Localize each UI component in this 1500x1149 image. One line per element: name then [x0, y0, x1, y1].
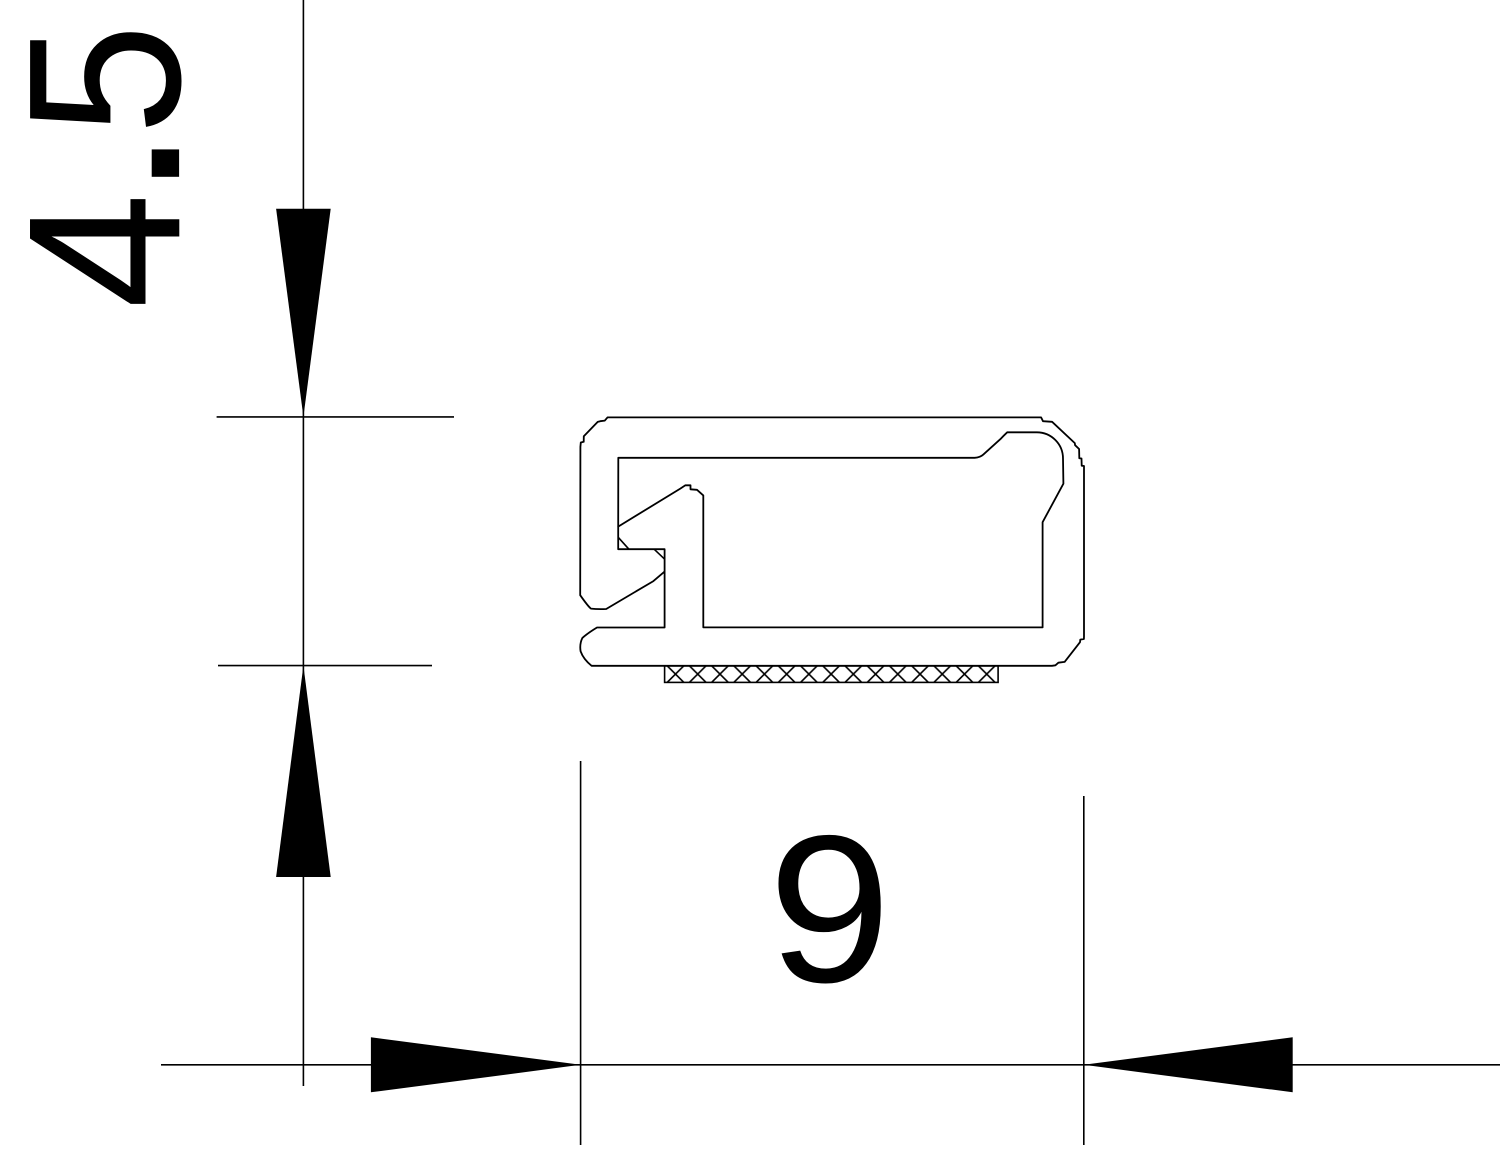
- svg-text:4: 4: [0, 193, 226, 309]
- svg-text:9: 9: [768, 792, 891, 1027]
- svg-text:5: 5: [0, 24, 226, 135]
